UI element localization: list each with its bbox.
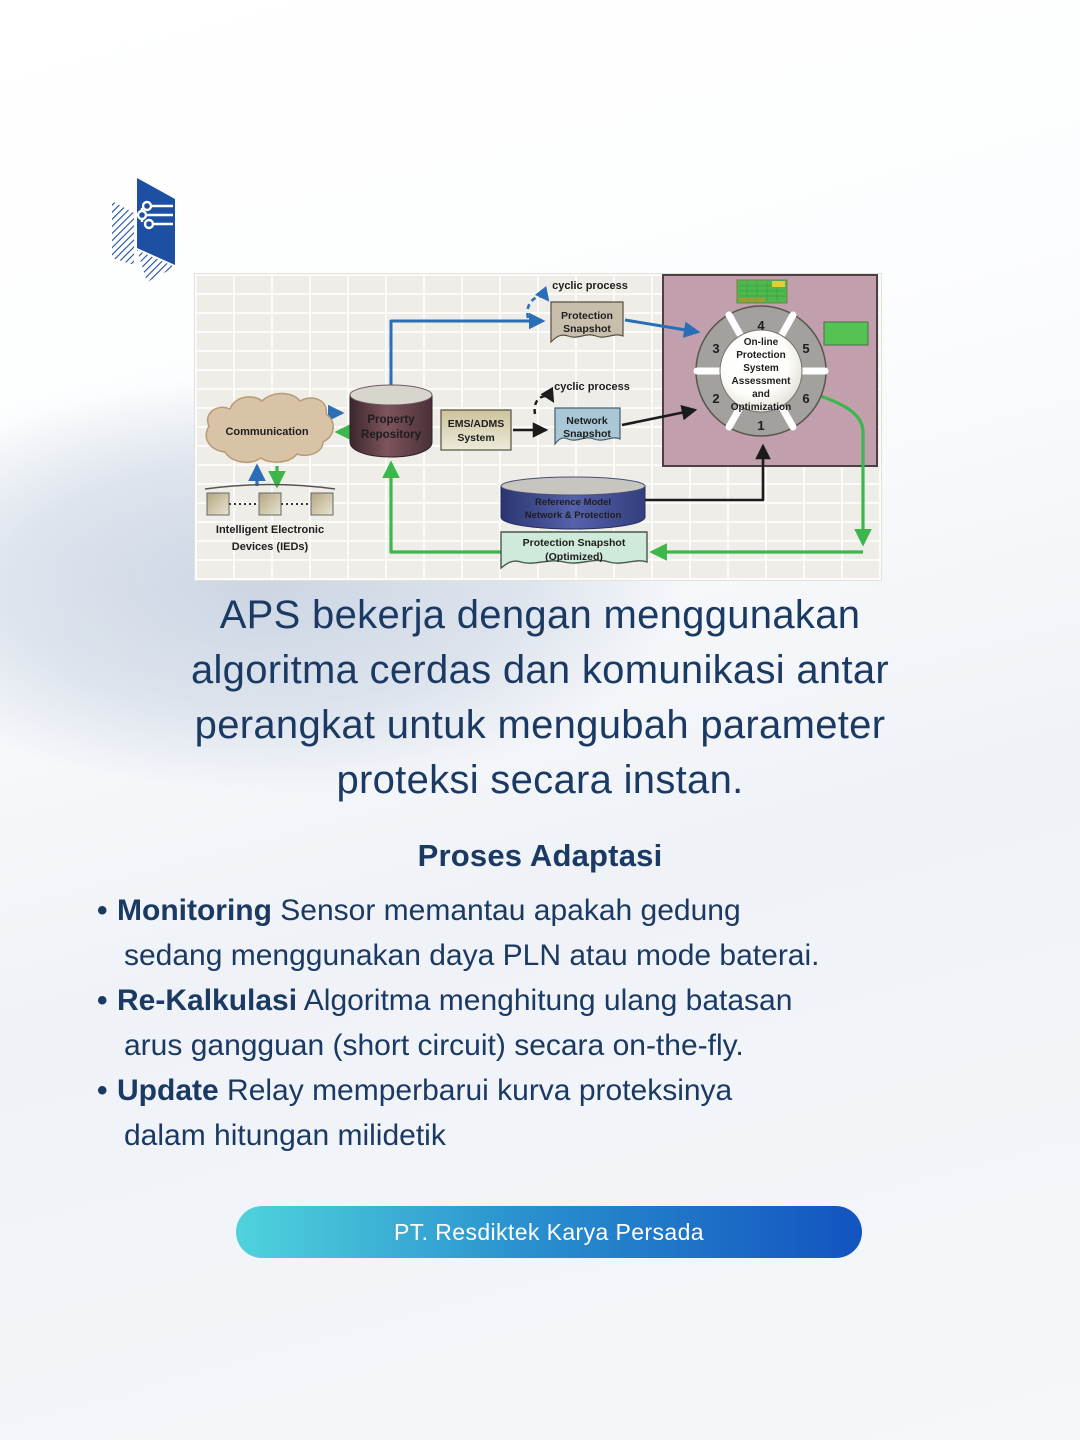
optimized-snapshot-doc: Protection Snapshot (Optimized) <box>501 532 647 568</box>
optimized-snapshot-label2: (Optimized) <box>545 551 603 563</box>
ieds-label-line1: Intelligent Electronic <box>216 524 324 536</box>
reference-model-cylinder: Reference Model Network & Protection <box>501 477 645 529</box>
arrow-cyclic-protection <box>527 296 548 318</box>
headline: APS bekerja dengan menggunakan algoritma… <box>0 588 1080 808</box>
cyclic-process-mid-label: cyclic process <box>554 381 630 393</box>
ems-label-line2: System <box>457 432 494 444</box>
ring-center-line2: Protection <box>736 350 785 361</box>
logo-left-panel <box>112 201 134 265</box>
headline-line-3: perangkat untuk mengubah parameter <box>0 698 1080 753</box>
company-pill-button[interactable]: PT. Resdiktek Karya Persada <box>236 1206 862 1258</box>
bullet-text-continued: arus gangguan (short circuit) secara on-… <box>97 1023 997 1068</box>
bullet-lead: Update <box>117 1074 219 1107</box>
green-block-icon <box>824 322 868 345</box>
book-circuit-logo-icon <box>99 168 181 286</box>
ring-number-2: 2 <box>712 391 719 406</box>
ied-group: Intelligent Electronic Devices (IEDs) <box>205 485 335 554</box>
aps-architecture-diagram: Communication Intelligent Electronic Dev… <box>195 274 881 580</box>
ring-center-line1: On-line <box>744 337 779 348</box>
property-repository-cylinder: Property Repository <box>350 385 432 457</box>
spreadsheet-thumbnail-icon <box>737 280 787 303</box>
ring-center-line5: and <box>752 389 770 400</box>
communication-label: Communication <box>225 426 308 438</box>
assessment-ring: 1 2 3 4 5 6 On-line Protection System As… <box>696 306 826 436</box>
network-snapshot-label1: Network <box>566 415 608 427</box>
ied-device-icon <box>311 493 333 515</box>
bullet-text-continued: dalam hitungan milidetik <box>97 1113 997 1158</box>
arrow-cyclic-network <box>535 396 553 414</box>
ring-number-4: 4 <box>757 318 765 333</box>
communication-cloud: Communication <box>206 394 333 463</box>
ring-number-1: 1 <box>757 418 764 433</box>
cyclic-process-top-label: cyclic process <box>552 280 628 292</box>
protection-snapshot-doc: Protection Snapshot cyclic process <box>551 280 628 342</box>
ring-number-3: 3 <box>712 341 719 356</box>
ied-device-icon <box>259 493 281 515</box>
network-snapshot-label2: Snapshot <box>563 428 611 440</box>
bullet-dot: • <box>97 978 108 1023</box>
bullet-lead: Monitoring <box>117 894 272 927</box>
list-item-monitoring: •Monitoring Sensor memantau apakah gedun… <box>97 888 997 978</box>
arrow-optimized-to-repository <box>391 463 501 552</box>
bullet-dot: • <box>97 888 108 933</box>
ied-device-icon <box>207 493 229 515</box>
bullet-text: Relay memperbarui kurva proteksinya <box>227 1074 732 1107</box>
repository-label-line2: Repository <box>361 429 422 441</box>
protection-snapshot-label2: Snapshot <box>563 323 611 335</box>
ems-label-line1: EMS/ADMS <box>448 418 505 430</box>
headline-line-4: proteksi secara instan. <box>0 753 1080 808</box>
arrow-repository-to-protection-snapshot <box>391 321 543 385</box>
repository-label-line1: Property <box>367 414 415 426</box>
headline-line-1: APS bekerja dengan menggunakan <box>0 588 1080 643</box>
ring-number-5: 5 <box>802 341 809 356</box>
infographic-page: Communication Intelligent Electronic Dev… <box>0 0 1080 1440</box>
bullet-lead: Re-Kalkulasi <box>117 984 297 1017</box>
ring-center-line6: Optimization <box>731 402 792 413</box>
headline-line-2: algoritma cerdas dan komunikasi antar <box>0 643 1080 698</box>
reference-model-label1: Reference Model <box>535 497 611 508</box>
network-snapshot-doc: Network Snapshot cyclic process <box>554 381 630 444</box>
section-title: Proses Adaptasi <box>0 838 1080 874</box>
ring-center-line3: System <box>743 363 779 374</box>
adaptation-process-list: •Monitoring Sensor memantau apakah gedun… <box>97 888 997 1158</box>
bullet-text-continued: sedang menggunakan daya PLN atau mode ba… <box>97 933 997 978</box>
ring-center-line4: Assessment <box>732 376 792 387</box>
protection-snapshot-label1: Protection <box>561 310 613 322</box>
ems-adms-box: EMS/ADMS System <box>441 410 511 450</box>
bullet-text: Algoritma menghitung ulang batasan <box>304 984 793 1017</box>
aps-architecture-diagram-canvas: Communication Intelligent Electronic Dev… <box>195 274 881 580</box>
optimized-snapshot-label1: Protection Snapshot <box>523 537 626 549</box>
bullet-text: Sensor memantau apakah gedung <box>280 894 740 927</box>
ring-number-6: 6 <box>802 391 809 406</box>
reference-model-label2: Network & Protection <box>525 510 622 521</box>
company-pill-label: PT. Resdiktek Karya Persada <box>394 1219 704 1246</box>
list-item-rekalkulasi: •Re-Kalkulasi Algoritma menghitung ulang… <box>97 978 997 1068</box>
list-item-update: •Update Relay memperbarui kurva proteksi… <box>97 1068 997 1158</box>
ieds-label-line2: Devices (IEDs) <box>232 541 309 553</box>
bullet-dot: • <box>97 1068 108 1113</box>
logo-right-panel <box>137 178 175 282</box>
